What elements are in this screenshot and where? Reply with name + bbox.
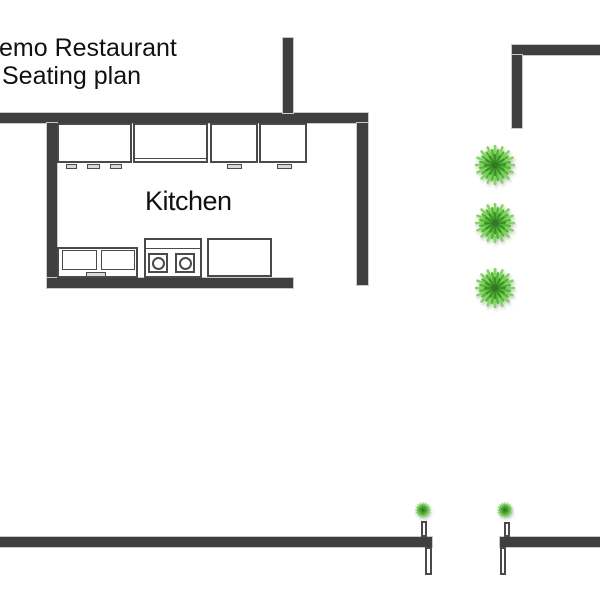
burner-ring-icon (179, 257, 192, 270)
wall-kitchen-right[interactable] (357, 123, 368, 285)
floor-plan: emo Restaurant Seating plan Kitchen (0, 0, 600, 600)
counter-cabinet-3[interactable] (210, 123, 258, 163)
wall-topright-vertical[interactable] (512, 55, 522, 128)
counter-cabinet-4[interactable] (259, 123, 307, 163)
cabinet-handle (277, 164, 292, 169)
cabinet-handle (110, 164, 122, 169)
door-jamb[interactable] (504, 522, 510, 537)
small-plant-icon[interactable] (497, 502, 513, 518)
door-jamb[interactable] (421, 521, 427, 537)
cabinet-handle (227, 164, 242, 169)
wall-kitchen-left[interactable] (47, 123, 57, 288)
stove-burner-right (175, 253, 195, 273)
sink-basin-right (101, 250, 135, 270)
wall-bottom-right[interactable] (500, 537, 600, 547)
plant-icon[interactable] (475, 268, 515, 308)
plant-icon[interactable] (475, 203, 515, 243)
door-jamb[interactable] (425, 547, 432, 575)
kitchen-room-label: Kitchen (145, 188, 232, 214)
wall-bottom-left[interactable] (0, 537, 432, 547)
counter-front-line (135, 158, 206, 159)
cabinet-handle (66, 164, 77, 169)
counter-cabinet-2[interactable] (133, 123, 208, 163)
stove-burner-left (148, 253, 168, 273)
cabinet-handle (87, 164, 100, 169)
sink-basin-left (62, 250, 97, 270)
sink-drain (86, 272, 106, 277)
plan-title: emo Restaurant (0, 34, 177, 62)
stove-panel-line (146, 248, 200, 249)
counter-cabinet-1[interactable] (57, 123, 132, 163)
burner-ring-icon (152, 257, 165, 270)
wall-kitchen-top[interactable] (0, 113, 368, 123)
wall-kitchen-bottom[interactable] (47, 278, 293, 288)
door-jamb[interactable] (500, 547, 506, 575)
plan-subtitle: Seating plan (2, 62, 141, 90)
wall-topright-horizontal[interactable] (512, 45, 600, 55)
worktop-counter[interactable] (207, 238, 272, 277)
wall-kitchen-stub[interactable] (283, 38, 293, 113)
plant-icon[interactable] (475, 145, 515, 185)
small-plant-icon[interactable] (415, 502, 431, 518)
